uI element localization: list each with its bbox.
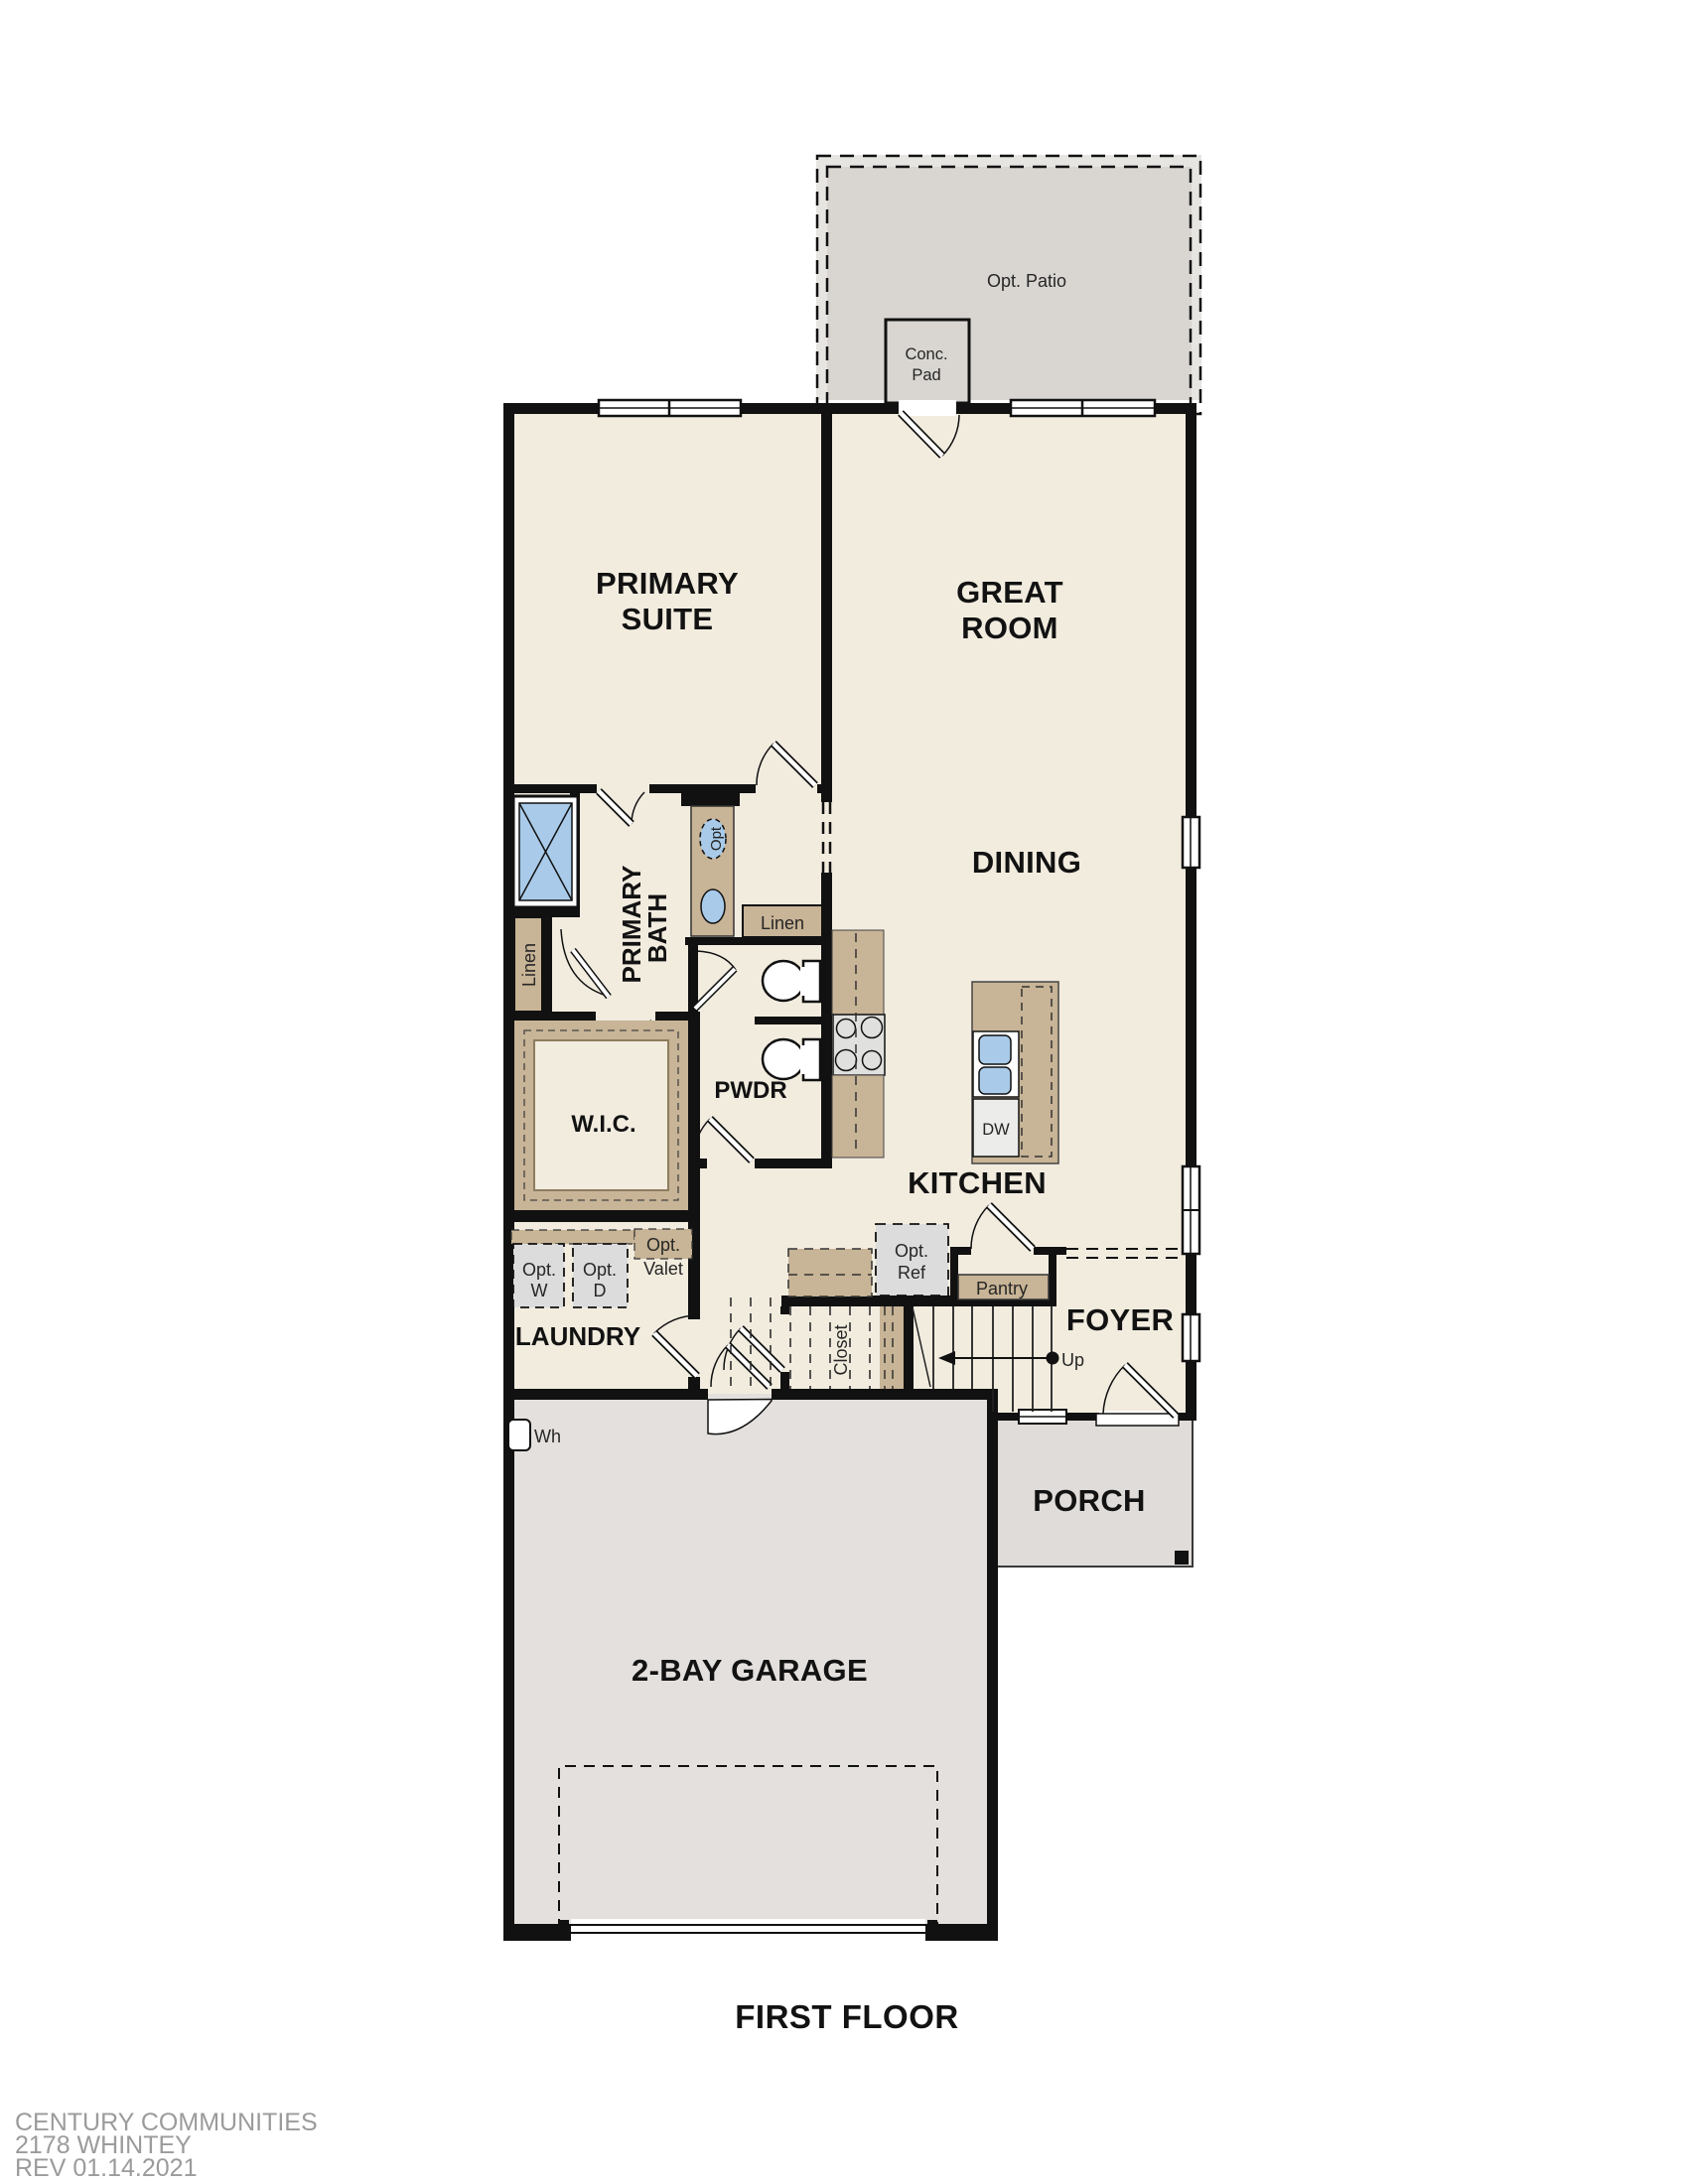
svg-text:Closet: Closet	[831, 1324, 851, 1375]
svg-text:ROOM: ROOM	[961, 611, 1058, 645]
svg-text:Pad: Pad	[912, 366, 940, 384]
svg-text:Pantry: Pantry	[976, 1279, 1028, 1298]
svg-text:LAUNDRY: LAUNDRY	[515, 1321, 640, 1351]
svg-text:FIRST FLOOR: FIRST FLOOR	[735, 1998, 958, 2035]
svg-text:Ref: Ref	[898, 1263, 926, 1283]
svg-text:Conc.: Conc.	[905, 345, 947, 363]
svg-text:BATH: BATH	[642, 893, 672, 963]
svg-text:W: W	[531, 1281, 548, 1300]
svg-text:SUITE: SUITE	[622, 602, 714, 636]
svg-text:Opt.: Opt.	[522, 1260, 556, 1280]
svg-text:Linen: Linen	[761, 913, 804, 933]
svg-text:2-BAY GARAGE: 2-BAY GARAGE	[632, 1653, 868, 1688]
svg-text:Linen: Linen	[519, 943, 539, 987]
svg-text:PORCH: PORCH	[1033, 1483, 1145, 1518]
svg-text:Opt: Opt	[708, 826, 725, 851]
svg-text:DW: DW	[982, 1121, 1010, 1139]
svg-text:FOYER: FOYER	[1066, 1302, 1174, 1337]
svg-text:KITCHEN: KITCHEN	[908, 1165, 1047, 1200]
svg-text:DINING: DINING	[972, 845, 1081, 880]
svg-text:GREAT: GREAT	[956, 575, 1063, 610]
svg-text:W.I.C.: W.I.C.	[571, 1111, 635, 1138]
svg-text:Opt. Patio: Opt. Patio	[987, 271, 1066, 291]
svg-text:PWDR: PWDR	[714, 1077, 786, 1104]
svg-text:D: D	[594, 1281, 607, 1300]
svg-text:Up: Up	[1061, 1350, 1084, 1370]
svg-text:Opt.: Opt.	[646, 1235, 680, 1255]
svg-text:Wh: Wh	[534, 1427, 561, 1446]
svg-text:PRIMARY: PRIMARY	[596, 566, 739, 601]
svg-text:Opt.: Opt.	[895, 1241, 928, 1261]
svg-text:REV 01.14.2021: REV 01.14.2021	[15, 2154, 197, 2182]
svg-text:Opt.: Opt.	[583, 1260, 617, 1280]
svg-text:Valet: Valet	[643, 1259, 683, 1279]
